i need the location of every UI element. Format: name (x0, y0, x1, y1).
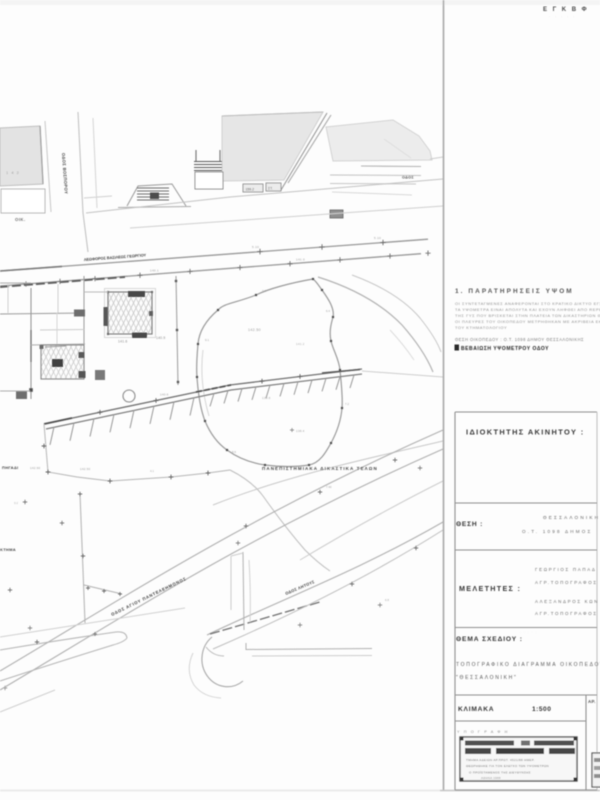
svg-text:138.4: 138.4 (296, 429, 305, 433)
svg-text:159.2: 159.2 (246, 188, 255, 192)
svg-text:ΤΟΠΟΓΡΑΦΙΚΟ ΔΙΑΓΡΑΜΜΑ ΟΙΚΟΠΕΔΟ: ΤΟΠΟΓΡΑΦΙΚΟ ΔΙΑΓΡΑΜΜΑ ΟΙΚΟΠΕΔΟΥ (456, 662, 600, 668)
svg-text:1. ΠΑΡΑΤΗΡΗΣΕΙΣ ΥΨΟΜ: 1. ΠΑΡΑΤΗΡΗΣΕΙΣ ΥΨΟΜ (455, 288, 574, 295)
svg-text:ΠΗΓΑΔΙ: ΠΗΓΑΔΙ (2, 465, 18, 470)
svg-text:ΑΓΡ.ΤΟΠΟΓΡΑΦΟΣ: ΑΓΡ.ΤΟΠΟΓΡΑΦΟΣ (535, 580, 598, 585)
svg-text:ΘΕΣΗ :: ΘΕΣΗ : (456, 521, 483, 528)
svg-text:8.6: 8.6 (232, 450, 236, 454)
svg-text:141.0: 141.0 (296, 257, 305, 261)
svg-text:ΣΤ.: ΣΤ. (268, 187, 273, 191)
svg-text:141.2: 141.2 (296, 342, 305, 346)
svg-text:5.10: 5.10 (252, 245, 259, 249)
svg-text:ΓΕΩΡΓΙΟΣ ΠΑΠΑΔ: ΓΕΩΡΓΙΟΣ ΠΑΠΑΔ (535, 567, 596, 572)
svg-text:7.2: 7.2 (345, 402, 349, 406)
svg-text:ΑΓΡ.ΤΟΠΟΓΡΑΦΟΣ: ΑΓΡ.ΤΟΠΟΓΡΑΦΟΣ (535, 611, 598, 616)
svg-text:5.10: 5.10 (374, 236, 381, 240)
svg-text:ΘΕΣΗ ΟΙΚΟΠΕΔΟΥ : Ο.Τ. 1098 ΔΗΜ: ΘΕΣΗ ΟΙΚΟΠΕΔΟΥ : Ο.Τ. 1098 ΔΗΜΟΥ ΘΕΣΣΑΛΟ… (455, 337, 584, 342)
svg-text:1:500: 1:500 (532, 706, 551, 713)
svg-text:ΑΘΗΝΑ 1988: ΑΘΗΝΑ 1988 (481, 776, 501, 780)
svg-text:ΟΙΚ.: ΟΙΚ. (15, 217, 26, 222)
svg-text:3.2: 3.2 (14, 501, 18, 505)
svg-text:142.90: 142.90 (30, 466, 41, 470)
svg-text:ΕΓΚΒΦ: ΕΓΚΒΦ (543, 7, 592, 13)
svg-text:ΘΕΜΑ ΣΧΕΔΙΟΥ :: ΘΕΜΑ ΣΧΕΔΙΟΥ : (456, 636, 523, 643)
svg-text:ΒΕΒΑΙΩΣΗ ΥΨΟΜΕΤΡΟΥ ΟΔΟΥ: ΒΕΒΑΙΩΣΗ ΥΨΟΜΕΤΡΟΥ ΟΔΟΥ (461, 346, 549, 352)
svg-text:140.6: 140.6 (160, 393, 169, 397)
svg-text:ΜΕΛΕΤΗΤΕΣ :: ΜΕΛΕΤΗΤΕΣ : (459, 584, 521, 593)
svg-text:· · · · ·: · · · · · (520, 630, 537, 634)
svg-text:4.1: 4.1 (150, 469, 154, 473)
svg-text:ΟΔΟΣ: ΟΔΟΣ (402, 176, 414, 180)
svg-text:ΤΑ ΥΨΟΜΕΤΡΑ ΕΙΝΑΙ ΑΠΟΛΥΤΑ ΚΑΙ: ΤΑ ΥΨΟΜΕΤΡΑ ΕΙΝΑΙ ΑΠΟΛΥΤΑ ΚΑΙ ΕΧΟΥΝ ΛΗΦΘ… (455, 307, 600, 312)
svg-text:140.9: 140.9 (156, 336, 166, 340)
svg-text:ΚΤΗΜΑ: ΚΤΗΜΑ (0, 547, 16, 552)
svg-text:ΤΟΥ ΚΤΗΜΑΤΟΛΟΓΙΟΥ: ΤΟΥ ΚΤΗΜΑΤΟΛΟΓΙΟΥ (455, 325, 507, 330)
svg-text:6.8: 6.8 (385, 598, 389, 602)
svg-text:7.40: 7.40 (326, 485, 332, 489)
svg-text:ΘΕΣΣΑΛΟΝΙΚΗ: ΘΕΣΣΑΛΟΝΙΚΗ (543, 515, 600, 520)
svg-text:1 4 2: 1 4 2 (6, 170, 20, 175)
svg-text:ΤΗΣ ΓΥΣ ΠΟΥ ΒΡΙΣΚΕΤΑΙ ΣΤΗΝ ΠΛΑ: ΤΗΣ ΓΥΣ ΠΟΥ ΒΡΙΣΚΕΤΑΙ ΣΤΗΝ ΠΛΑΤΕΙΑ ΤΩΝ Δ… (455, 313, 600, 318)
svg-text:ΟΙ ΠΛΕΥΡΕΣ ΤΟΥ ΟΙΚΟΠΕΔΟΥ ΜΕΤΡΗ: ΟΙ ΠΛΕΥΡΕΣ ΤΟΥ ΟΙΚΟΠΕΔΟΥ ΜΕΤΡΗΘΗΚΑΝ ΜΕ Α… (455, 319, 600, 324)
svg-text:140.1: 140.1 (150, 268, 159, 272)
svg-text:Υ Π Ο Γ Ρ Α Φ Η: Υ Π Ο Γ Ρ Α Φ Η (457, 730, 509, 734)
svg-text:6.4: 6.4 (326, 309, 330, 313)
svg-text:9.1: 9.1 (205, 338, 209, 342)
svg-text:142.50: 142.50 (80, 467, 91, 471)
svg-text:······························: ·································· (456, 2, 524, 6)
svg-text:ΠΑΝΕΠΙΣΤΗΜΙΑΚΑ ΔΙΚΑΣΤΙΚΑ ΤΕΛΩΝ: ΠΑΝΕΠΙΣΤΗΜΙΑΚΑ ΔΙΚΑΣΤΙΚΑ ΤΕΛΩΝ (262, 466, 378, 471)
svg-text:ΚΛΙΜΑΚΑ: ΚΛΙΜΑΚΑ (458, 706, 494, 713)
svg-text:141.6: 141.6 (118, 340, 128, 344)
svg-text:ΙΔΙΟΚΤΗΤΗΣ ΑΚΙΝΗΤΟΥ :: ΙΔΙΟΚΤΗΤΗΣ ΑΚΙΝΗΤΟΥ : (466, 428, 585, 437)
svg-text:142.50: 142.50 (248, 328, 261, 332)
svg-text:ΑΛΕΞΑΝΔΡΟΣ ΚΩΝ: ΑΛΕΞΑΝΔΡΟΣ ΚΩΝ (535, 599, 599, 604)
svg-text:Ο ΠΡΟΪΣΤΑΜΕΝΟΣ ΤΗΣ ΔΙΕΥΘΥΝΣΗ: Ο ΠΡΟΪΣΤΑΜΕΝΟΣ ΤΗΣ ΔΙΕΥΘΥΝΣΗΣ (469, 771, 531, 775)
svg-text:"ΘΕΣΣΑΛΟΝΙΚΗ": "ΘΕΣΣΑΛΟΝΙΚΗ" (456, 675, 517, 681)
svg-text:Ο.Τ. 1098 ΔΗΜΟΣ: Ο.Τ. 1098 ΔΗΜΟΣ (522, 529, 593, 534)
svg-text:ΑΡ.: ΑΡ. (588, 699, 596, 704)
svg-text:ΟΙ ΣΥΝΤΕΤΑΓΜΕΝΕΣ ΑΝΑΦΕΡΟΝΤΑΙ Σ: ΟΙ ΣΥΝΤΕΤΑΓΜΕΝΕΣ ΑΝΑΦΕΡΟΝΤΑΙ ΣΤΟ ΚΡΑΤΙΚΟ… (455, 301, 600, 306)
svg-text:7.8: 7.8 (262, 289, 266, 293)
svg-text:· · · · ·: · · · · · (549, 15, 576, 19)
svg-text:ΘΕΩΡΗΘΗΚΕ ΓΙΑ ΤΟΝ ΕΛΕΓΧΟ ΤΩΝ Υ: ΘΕΩΡΗΘΗΚΕ ΓΙΑ ΤΟΝ ΕΛΕΓΧΟ ΤΩΝ ΥΨΟΜΕΤΡΩΝ (466, 764, 549, 768)
svg-text:ΤΜΗΜΑ ΑΔΕΙΩΝ ΑΡ.ΠΡΩΤ. 4521/8: ΤΜΗΜΑ ΑΔΕΙΩΝ ΑΡ.ΠΡΩΤ. 4521/88 ΗΜΕΡ. (466, 758, 535, 762)
